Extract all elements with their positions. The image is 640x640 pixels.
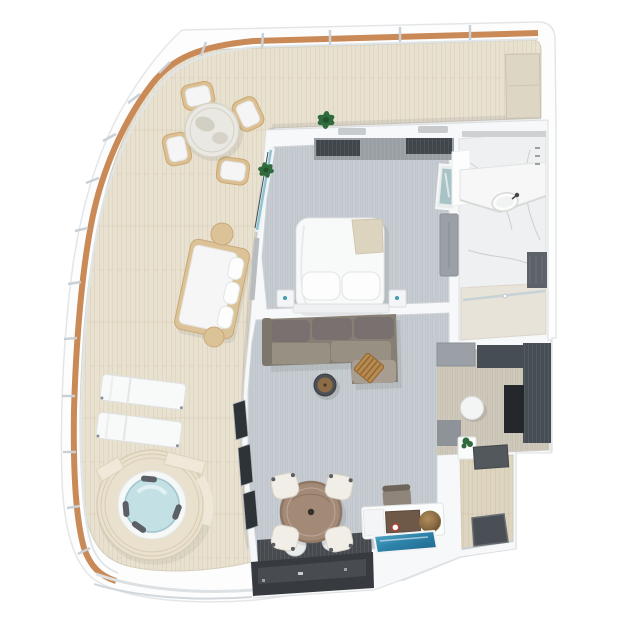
table-centerpiece	[308, 509, 314, 515]
credenza-wood-panel	[385, 510, 420, 533]
nightstand-lamp-right	[395, 296, 399, 300]
blue-glass-panel	[374, 531, 437, 553]
bronze-ice-bucket	[419, 511, 441, 533]
bed-throw	[352, 219, 383, 254]
sofa-back-cushion-3	[354, 317, 394, 339]
bathroom-top-ledge	[462, 131, 546, 137]
side-stool-2	[204, 327, 224, 347]
pillow-left	[302, 272, 340, 300]
media-detail-2	[262, 579, 265, 582]
shower-handle	[503, 294, 507, 298]
wardrobe-cabinet-gray	[437, 343, 475, 366]
marble-blob-2	[212, 132, 228, 144]
pillow-right	[342, 272, 380, 300]
nightstand-lamp-left	[283, 296, 287, 300]
media-detail-3	[344, 568, 347, 571]
outdoor-chair-bottom	[215, 156, 250, 186]
double-bed	[293, 218, 389, 316]
floorplan-canvas	[0, 0, 640, 640]
headboard	[293, 304, 389, 313]
door-mat	[472, 514, 508, 546]
sofa-back-cushion-2	[312, 318, 352, 340]
sofa-armrest	[262, 318, 272, 366]
entry-desk	[473, 445, 508, 469]
wardrobe-louver-texture	[314, 138, 454, 160]
sofa-seat-1	[270, 343, 330, 364]
side-stool-1	[211, 223, 233, 245]
pouf	[461, 397, 484, 420]
wardrobe-louver	[523, 343, 551, 443]
floorplan-render	[0, 0, 640, 640]
credenza-dial	[392, 524, 399, 531]
ceiling-vent-right	[418, 126, 448, 133]
wardrobe-low-unit	[437, 420, 461, 446]
media-detail-1	[298, 572, 303, 575]
sofa-back-cushion-1	[270, 320, 310, 342]
sofa-seat-2	[331, 341, 391, 362]
closet-doorway	[504, 385, 524, 433]
hot-tub	[96, 450, 213, 565]
wardrobe-top	[477, 345, 523, 368]
ceiling-vent-left	[338, 128, 366, 135]
